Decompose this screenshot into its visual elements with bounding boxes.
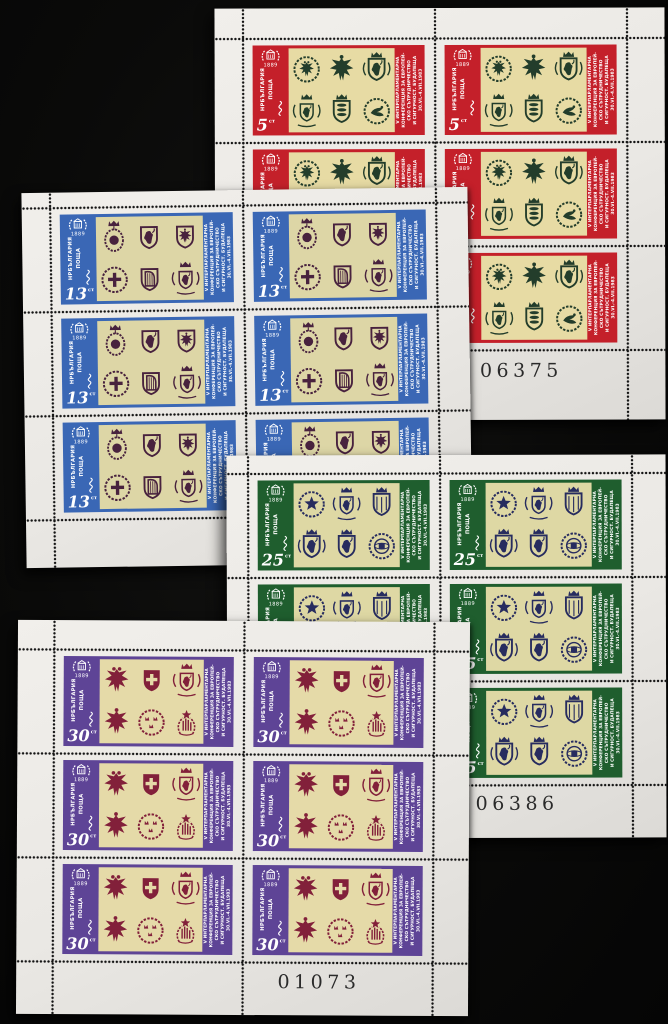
left-inscription-band: 1889НРБЪЛГАРИЯПОЩА13ст	[60, 214, 97, 304]
conference-inscription-line: 30.VI.-4.VII.1983	[610, 52, 616, 127]
conference-inscription: V ИНТЕРПАРЛАМЕНТАРНАКОНФЕРЕНЦИЯ ЗА ЕВРОП…	[205, 324, 235, 400]
coat-of-arms-dove-wreath-roundel	[554, 93, 584, 129]
left-inscription-band: 1889НРБЪЛГАРИЯПОЩА25ст	[450, 480, 486, 570]
sheet-serial-number: 01073	[277, 971, 360, 993]
conference-inscription: V ИНТЕРПАРЛАМЕНТАРНАКОНФЕРЕНЦИЯ ЗА ЕВРОП…	[398, 321, 428, 397]
stamp-design: 1889НРБЪЛГАРИЯПОЩА25стV ИНТЕРПАРЛАМЕНТАР…	[450, 688, 622, 778]
coat-of-arms-double-eagle-wreath-roundel	[483, 51, 513, 87]
coat-of-arms-dove-wreath-roundel	[555, 301, 585, 337]
country-name: НРБЪЛГАРИЯ	[264, 503, 272, 546]
coat-of-arms-crowned-oval-medallion	[293, 321, 323, 357]
coat-of-arms-crowned-lion-shield	[332, 528, 362, 564]
coat-of-arms-heraldic-eagle	[519, 259, 549, 295]
country-inscription: НРБЪЛГАРИЯПОЩА	[69, 783, 85, 826]
coat-of-arms-lion-arms-with-supporters	[489, 632, 519, 668]
country-inscription: НРБЪЛГАРИЯПОЩА	[260, 338, 277, 382]
stamp-blue-13: 1889НРБЪЛГАРИЯПОЩА13стV ИНТЕРПАРЛАМЕНТАР…	[50, 205, 244, 312]
coats-of-arms-panel	[486, 691, 592, 775]
coat-of-arms-crowned-arms-with-supporters	[524, 694, 554, 730]
conference-inscription: V ИНТЕРПАРЛАМЕНТАРНАКОНФЕРЕНЦИЯ ЗА ЕВРОП…	[400, 487, 429, 562]
coat-of-arms-double-eagle-wreath-roundel	[484, 155, 514, 191]
left-inscription-band: 1889НРБЪЛГАРИЯПОЩА30ст	[253, 761, 289, 851]
coat-of-arms-three-crowns-roundel	[136, 808, 166, 844]
postal-label: ПОЩА	[76, 887, 84, 930]
ipu-1889-emblem: 1889	[253, 152, 289, 172]
coat-of-arms-royal-arms-with-supporters	[484, 301, 514, 337]
coat-of-arms-flame-wreath-star-emblem	[360, 914, 390, 950]
coats-of-arms-panel	[289, 48, 395, 132]
conference-inscription-line: 30.VI.-4.VII.1983	[226, 220, 233, 295]
denomination: 30ст	[67, 828, 97, 848]
laurel-wreath-1889-icon	[70, 867, 92, 880]
stamp-design: 1889НРБЪЛГАРИЯПОЩА30стV ИНТЕРПАРЛАМЕНТАР…	[252, 865, 422, 956]
coats-of-arms-panel	[486, 483, 592, 567]
coat-of-arms-dove-wreath-roundel	[362, 93, 392, 129]
currency-label: ст	[90, 833, 96, 839]
stamp-design: 1889НРБЪЛГАРИЯПОЩА13стV ИНТЕРПАРЛАМЕНТАР…	[60, 212, 234, 304]
conference-inscription: V ИНТЕРПАРЛАМЕНТАРНАКОНФЕРЕНЦИЯ ЗА ЕВРОП…	[587, 52, 616, 127]
coat-of-arms-cross-shield	[326, 871, 356, 907]
coat-of-arms-crowned-quartered-shield	[559, 486, 589, 522]
conference-inscription: V ИНТЕРПАРЛАМЕНТАРНАКОНФЕРЕНЦИЯ ЗА ЕВРОП…	[393, 873, 422, 948]
conference-inscription-line: 30.VI.-4.VII.1983	[611, 260, 617, 335]
coat-of-arms-double-eagle-wreath-roundel	[292, 155, 322, 191]
country-name: НРБЪЛГАРИЯ	[258, 888, 266, 931]
stamp-design: 1889НРБЪЛГАРИЯПОЩА25стV ИНТЕРПАРЛАМЕНТАР…	[450, 584, 622, 674]
country-name: НРБЪЛГАРИЯ	[69, 783, 77, 826]
coat-of-arms-eagle-shield	[171, 323, 201, 359]
stamp-blue-13: 1889НРБЪЛГАРИЯПОЩА13стV ИНТЕРПАРЛАМЕНТАР…	[53, 413, 247, 520]
ipu-1889-emblem: 1889	[64, 659, 100, 679]
flourish-ornament-icon	[468, 204, 477, 220]
stamp-design: 1889НРБЪЛГАРИЯПОЩА25стV ИНТЕРПАРЛАМЕНТАР…	[450, 480, 622, 570]
left-inscription-band: 1889НРБЪЛГАРИЯПОЩА30ст	[62, 864, 98, 954]
conference-inscription-line: 30.VI.-4.VII.1983	[418, 52, 424, 127]
coat-of-arms-harp-shield	[136, 365, 166, 401]
denomination: 30ст	[67, 724, 97, 744]
right-inscription-band: V ИНТЕРПАРЛАМЕНТАРНАКОНФЕРЕНЦИЯ ЗА ЕВРОП…	[395, 45, 425, 135]
coat-of-arms-double-headed-eagle	[101, 870, 131, 906]
coat-of-arms-three-lions-crowned-shield	[327, 93, 357, 129]
conference-inscription: V ИНТЕРПАРЛАМЕНТАРНАКОНФЕРЕНЦИЯ ЗА ЕВРОП…	[394, 769, 423, 844]
right-inscription-band: V ИНТЕРПАРЛАМЕНТАРНАКОНФЕРЕНЦИЯ ЗА ЕВРОП…	[587, 253, 617, 343]
coat-of-arms-three-lions-crowned-shield	[519, 93, 549, 129]
perforation-column	[429, 622, 436, 1016]
coat-of-arms-crowned-arms-with-supporters	[332, 486, 362, 522]
conference-inscription: V ИНТЕРПАРЛАМЕНТАРНАКОНФЕРЕНЦИЯ ЗА ЕВРОП…	[397, 217, 427, 293]
coats-of-arms-panel	[96, 216, 204, 301]
coat-of-arms-lion-arms-with-supporters	[489, 736, 519, 772]
conference-inscription-line: 30.VI.-4.VII.1983	[227, 664, 233, 739]
coat-of-arms-three-crowns-roundel	[326, 705, 356, 741]
stamp-blue-13: 1889НРБЪЛГАРИЯПОЩА13стV ИНТЕРПАРЛАМЕНТАР…	[51, 309, 245, 416]
coat-of-arms-crowned-oval-medallion	[102, 428, 132, 464]
coat-of-arms-lion-rampant-shield	[134, 219, 164, 255]
coat-of-arms-crowned-lion-shield	[524, 528, 554, 564]
coats-of-arms-panel	[481, 48, 587, 132]
stamp-purple-30: 1889НРБЪЛГАРИЯПОЩА30стV ИНТЕРПАРЛАМЕНТАР…	[243, 754, 434, 859]
denomination: 13ст	[259, 383, 289, 403]
coat-of-arms-lion-rampant-shield	[329, 320, 359, 356]
left-inscription-band: 1889НРБЪЛГАРИЯПОЩА30ст	[63, 760, 99, 850]
coat-of-arms-crowned-lion-shield-with-supporters	[554, 51, 584, 87]
conference-inscription: V ИНТЕРПАРЛАМЕНТАРНАКОНФЕРЕНЦИЯ ЗА ЕВРОП…	[204, 220, 234, 296]
coats-of-arms-panel	[289, 660, 393, 745]
coat-of-arms-royal-arms-with-supporters	[171, 767, 201, 803]
currency-label: ст	[285, 553, 291, 559]
coat-of-arms-lion-rampant-shield	[136, 323, 166, 359]
ipu-1889-emblem: 1889	[256, 422, 292, 443]
coats-of-arms-panel	[99, 763, 203, 848]
left-inscription-band: 1889НРБЪЛГАРИЯПОЩА30ст	[252, 865, 288, 955]
coat-of-arms-spread-eagle	[101, 808, 131, 844]
stamp-blue-13: 1889НРБЪЛГАРИЯПОЩА13стV ИНТЕРПАРЛАМЕНТАР…	[244, 306, 438, 413]
coat-of-arms-cross-wreath-roundel	[99, 262, 129, 298]
left-inscription-band: 1889НРБЪЛГАРИЯПОЩА30ст	[253, 657, 289, 747]
coat-of-arms-royal-arms-with-supporters	[484, 197, 514, 233]
coat-of-arms-three-crowns-roundel	[135, 912, 165, 948]
ipu-1889-emblem: 1889	[253, 868, 289, 888]
coat-of-arms-crowned-lion-shield-with-supporters	[362, 51, 392, 87]
coat-of-arms-spread-eagle	[291, 913, 321, 949]
ipu-1889-emblem: 1889	[450, 587, 486, 607]
conference-inscription: V ИНТЕРПАРЛАМЕНТАРНАКОНФЕРЕНЦИЯ ЗА ЕВРОП…	[588, 156, 617, 231]
right-inscription-band: V ИНТЕРПАРЛАМЕНТАРНАКОНФЕРЕНЦИЯ ЗА ЕВРОП…	[592, 584, 622, 674]
laurel-wreath-1889-icon	[68, 321, 90, 334]
coat-of-arms-three-crowns-roundel	[326, 809, 356, 845]
coat-of-arms-royal-arms-with-supporters	[170, 871, 200, 907]
stamp-design: 1889НРБЪЛГАРИЯПОЩА30стV ИНТЕРПАРЛАМЕНТАР…	[253, 761, 423, 852]
coats-of-arms-panel	[481, 152, 587, 236]
coat-of-arms-eagle-shield	[364, 320, 394, 356]
coats-of-arms-panel	[294, 483, 400, 567]
ipu-1889-emblem: 1889	[254, 318, 290, 339]
postal-label: ПОЩА	[267, 784, 275, 827]
stamp-blue-13: 1889НРБЪЛГАРИЯПОЩА13стV ИНТЕРПАРЛАМЕНТАР…	[243, 202, 437, 309]
laurel-wreath-1889-icon	[452, 48, 474, 61]
stamp-purple-30: 1889НРБЪЛГАРИЯПОЩА30стV ИНТЕРПАРЛАМЕНТАР…	[52, 857, 243, 962]
left-inscription-band: 1889НРБЪЛГАРИЯПОЩА13ст	[63, 422, 100, 512]
conference-inscription-line: 30.VI.-4.VII.1983	[417, 665, 423, 740]
coat-of-arms-star-wreath-roundel	[296, 486, 326, 522]
coat-of-arms-three-crowns-roundel	[136, 704, 166, 740]
conference-inscription-line: 30.VI.-4.VII.1983	[421, 321, 428, 396]
postal-label: ПОЩА	[77, 445, 86, 488]
stamp-design: 1889НРБЪЛГАРИЯПОЩА13стV ИНТЕРПАРЛАМЕНТАР…	[253, 209, 427, 301]
denomination: 25ст	[262, 548, 291, 568]
coat-of-arms-cross-shield	[326, 767, 356, 803]
currency-label: ст	[269, 118, 275, 124]
conference-inscription-line: 30.VI.-4.VII.1983	[423, 487, 429, 562]
ipu-1889-emblem: 1889	[60, 217, 96, 238]
coat-of-arms-crowned-quartered-shield	[367, 486, 397, 522]
coat-of-arms-spread-eagle	[292, 705, 322, 741]
sheet-serial-number: 06375	[480, 360, 563, 382]
perforation-column	[624, 8, 630, 420]
stamp-design: 1889НРБЪЛГАРИЯПОЩА30стV ИНТЕРПАРЛАМЕНТАР…	[63, 656, 233, 747]
laurel-wreath-1889-icon	[452, 152, 474, 165]
right-inscription-band: V ИНТЕРПАРЛАМЕНТАРНАКОНФЕРЕНЦИЯ ЗА ЕВРОП…	[204, 316, 235, 406]
stamp-purple-30: 1889НРБЪЛГАРИЯПОЩА30стV ИНТЕРПАРЛАМЕНТАР…	[53, 753, 244, 858]
coat-of-arms-royal-arms-with-supporters	[291, 93, 321, 129]
postal-label: ПОЩА	[459, 67, 467, 110]
coat-of-arms-harp-shield	[135, 261, 165, 297]
currency-label: ст	[478, 761, 484, 767]
country-name: НРБЪЛГАРИЯ	[259, 680, 267, 723]
flourish-ornament-icon	[468, 100, 477, 116]
ipu-1889-emblem: 1889	[445, 152, 481, 172]
coat-of-arms-royal-arms-with-supporters	[361, 664, 391, 700]
coat-of-arms-crowned-quartered-shield	[559, 694, 589, 730]
country-inscription: НРБЪЛГАРИЯПОЩА	[264, 503, 280, 546]
denomination: 5ст	[257, 113, 275, 133]
coat-of-arms-harp-shield	[138, 469, 168, 505]
laurel-wreath-1889-icon	[265, 587, 287, 600]
conference-inscription: V ИНТЕРПАРЛАМЕНТАРНАКОНФЕРЕНЦИЯ ЗА ЕВРОП…	[593, 591, 622, 666]
coat-of-arms-crowned-oval-medallion	[99, 220, 129, 256]
coat-of-arms-flame-wreath-star-emblem	[361, 706, 391, 742]
coat-of-arms-double-eagle-wreath-roundel	[484, 259, 514, 295]
coat-of-arms-crowned-lion-shield-with-supporters	[554, 155, 584, 191]
laurel-wreath-1889-icon	[260, 868, 282, 881]
conference-inscription-line: 30.VI.-4.VII.1983	[226, 768, 232, 843]
conference-inscription-line: 30.VI.-4.VII.1983	[610, 156, 616, 231]
sheet-serial-number: 06386	[476, 793, 559, 815]
flourish-ornament-icon	[468, 308, 477, 324]
laurel-wreath-1889-icon	[260, 48, 282, 61]
left-inscription-band: 1889НРБЪЛГАРИЯПОЩА25ст	[258, 480, 294, 570]
country-inscription: НРБЪЛГАРИЯПОЩА	[258, 888, 274, 931]
conference-inscription: V ИНТЕРПАРЛАМЕНТАРНАКОНФЕРЕНЦИЯ ЗА ЕВРОП…	[394, 665, 423, 740]
stamp-red-5: 1889НРБЪЛГАРИЯПОЩА5стV ИНТЕРПАРЛАМЕНТАРН…	[243, 38, 435, 143]
conference-inscription-line: 30.VI.-4.VII.1983	[615, 487, 621, 562]
country-inscription: НРБЪЛГАРИЯПОЩА	[66, 237, 83, 281]
stamp-design: 1889НРБЪЛГАРИЯПОЩА5стV ИНТЕРПАРЛАМЕНТАРН…	[445, 149, 617, 239]
coat-of-arms-flame-wreath-star-emblem	[170, 913, 200, 949]
stamp-design: 1889НРБЪЛГАРИЯПОЩА5стV ИНТЕРПАРЛАМЕНТАРН…	[445, 253, 617, 343]
conference-inscription-line: 30.VI.-4.VII.1983	[416, 769, 422, 844]
right-inscription-band: V ИНТЕРПАРЛАМЕНТАРНАКОНФЕРЕНЦИЯ ЗА ЕВРОП…	[592, 480, 622, 570]
coat-of-arms-cross-wreath-roundel	[292, 259, 322, 295]
currency-label: ст	[282, 388, 288, 394]
country-inscription: НРБЪЛГАРИЯПОЩА	[67, 341, 84, 385]
currency-label: ст	[88, 287, 94, 293]
denomination: 25ст	[454, 548, 483, 568]
conference-inscription-line: 30.VI.-4.VII.1983	[615, 591, 621, 666]
coats-of-arms-panel	[97, 320, 205, 405]
laurel-wreath-1889-icon	[457, 483, 479, 496]
coats-of-arms-panel	[289, 213, 397, 298]
ipu-1889-emblem: 1889	[253, 214, 289, 235]
stamp-purple-30: 1889НРБЪЛГАРИЯПОЩА30стV ИНТЕРПАРЛАМЕНТАР…	[242, 858, 433, 963]
coats-of-arms-panel	[99, 659, 203, 744]
flourish-ornament-icon	[276, 100, 285, 116]
currency-label: ст	[461, 118, 467, 124]
currency-label: ст	[91, 729, 97, 735]
ipu-1889-emblem: 1889	[445, 48, 481, 68]
country-name: НРБЪЛГАРИЯ	[68, 887, 76, 930]
ipu-1889-emblem: 1889	[258, 587, 294, 607]
postal-label: ПОЩА	[267, 68, 275, 111]
coat-of-arms-spread-eagle	[291, 809, 321, 845]
coat-of-arms-lion-arms-with-supporters	[296, 528, 326, 564]
coat-of-arms-star-wreath-roundel	[488, 486, 518, 522]
coat-of-arms-flame-wreath-star-emblem	[171, 809, 201, 845]
coat-of-arms-armillary-sphere-roundel	[559, 528, 589, 564]
country-inscription: НРБЪЛГАРИЯПОЩА	[456, 502, 472, 545]
conference-inscription-line: 30.VI.-4.VII.1983	[419, 217, 426, 292]
coat-of-arms-three-crowns-roundel	[325, 913, 355, 949]
ipu-1889-emblem: 1889	[450, 483, 486, 503]
right-inscription-band: V ИНТЕРПАРЛАМЕНТАРНАКОНФЕРЕНЦИЯ ЗА ЕВРОП…	[397, 313, 428, 403]
currency-label: ст	[89, 391, 95, 397]
laurel-wreath-1889-icon	[71, 659, 93, 672]
coat-of-arms-star-wreath-roundel	[489, 590, 519, 626]
postal-label: ПОЩА	[78, 679, 86, 722]
stamp-sheets-photo: 1889НРБЪЛГАРИЯПОЩА5стV ИНТЕРПАРЛАМЕНТАРН…	[0, 0, 668, 1024]
conference-inscription: V ИНТЕРПАРЛАМЕНТАРНАКОНФЕРЕНЦИЯ ЗА ЕВРОП…	[588, 260, 617, 335]
coat-of-arms-crowned-arms-with-supporters	[365, 362, 395, 398]
postal-label: ПОЩА	[464, 502, 472, 545]
country-name: НРБЪЛГАРИЯ	[70, 679, 78, 722]
coats-of-arms-panel	[98, 867, 202, 952]
right-inscription-band: V ИНТЕРПАРЛАМЕНТАРНАКОНФЕРЕНЦИЯ ЗА ЕВРОП…	[202, 865, 232, 955]
currency-label: ст	[90, 937, 96, 943]
coat-of-arms-heraldic-eagle	[519, 155, 549, 191]
coat-of-arms-heraldic-eagle	[327, 155, 357, 191]
postal-label: ПОЩА	[268, 338, 277, 381]
stamp-design: 1889НРБЪЛГАРИЯПОЩА5стV ИНТЕРПАРЛАМЕНТАРН…	[253, 45, 425, 135]
coat-of-arms-lion-rampant-shield	[137, 427, 167, 463]
coat-of-arms-eagle-shield	[363, 216, 393, 252]
ipu-1889-emblem: 1889	[63, 425, 99, 446]
country-inscription: НРБЪЛГАРИЯПОЩА	[70, 679, 86, 722]
country-inscription: НРБЪЛГАРИЯПОЩА	[259, 234, 276, 278]
coat-of-arms-three-lions-crowned-shield	[519, 301, 549, 337]
coat-of-arms-crowned-oval-medallion	[100, 324, 130, 360]
coat-of-arms-double-eagle-wreath-roundel	[291, 51, 321, 87]
right-inscription-band: V ИНТЕРПАРЛАМЕНТАРНАКОНФЕРЕНЦИЯ ЗА ЕВРОП…	[396, 209, 427, 299]
coats-of-arms-panel	[486, 587, 592, 671]
right-inscription-band: V ИНТЕРПАРЛАМЕНТАРНАКОНФЕРЕНЦИЯ ЗА ЕВРОП…	[592, 688, 622, 778]
stamp-design: 1889НРБЪЛГАРИЯПОЩА13стV ИНТЕРПАРЛАМЕНТАР…	[61, 316, 235, 408]
laurel-wreath-1889-icon	[261, 318, 283, 331]
coat-of-arms-heraldic-eagle	[519, 51, 549, 87]
laurel-wreath-1889-icon	[260, 152, 282, 165]
coat-of-arms-crowned-arms-with-supporters	[364, 258, 394, 294]
postal-label: ПОЩА	[266, 888, 274, 931]
ipu-1889-emblem: 1889	[63, 867, 99, 887]
stamp-design: 1889НРБЪЛГАРИЯПОЩА5стV ИНТЕРПАРЛАМЕНТАРН…	[445, 45, 617, 135]
coat-of-arms-spread-eagle	[102, 704, 132, 740]
laurel-wreath-1889-icon	[260, 214, 282, 227]
coat-of-arms-cross-wreath-roundel	[102, 470, 132, 506]
currency-label: ст	[477, 553, 483, 559]
country-inscription: НРБЪЛГАРИЯПОЩА	[68, 887, 84, 930]
postal-label: ПОЩА	[267, 680, 275, 723]
coat-of-arms-double-headed-eagle	[102, 662, 132, 698]
right-inscription-band: V ИНТЕРПАРЛАМЕНТАРНАКОНФЕРЕНЦИЯ ЗА ЕВРОП…	[203, 761, 233, 851]
coat-of-arms-harp-shield	[328, 258, 358, 294]
laurel-wreath-1889-icon	[261, 660, 283, 673]
left-inscription-band: 1889НРБЪЛГАРИЯПОЩА13ст	[253, 211, 290, 301]
stamp-green-25: 1889НРБЪЛГАРИЯПОЩА25стV ИНТЕРПАРЛАМЕНТАР…	[440, 473, 632, 578]
coat-of-arms-crowned-arms-with-supporters	[524, 590, 554, 626]
right-inscription-band: V ИНТЕРПАРЛАМЕНТАРНАКОНФЕРЕНЦИЯ ЗА ЕВРОП…	[203, 657, 233, 747]
perforation-column	[629, 455, 635, 838]
stamp-purple-30: 1889НРБЪЛГАРИЯПОЩА30стV ИНТЕРПАРЛАМЕНТАР…	[243, 650, 434, 755]
laurel-wreath-1889-icon	[260, 764, 282, 777]
stamp-design: 1889НРБЪЛГАРИЯПОЩА25стV ИНТЕРПАРЛАМЕНТАР…	[258, 480, 430, 570]
coat-of-arms-crowned-arms-with-supporters	[173, 469, 203, 505]
coat-of-arms-eagle-shield	[170, 219, 200, 255]
conference-inscription: V ИНТЕРПАРЛАМЕНТАРНАКОНФЕРЕНЦИЯ ЗА ЕВРОП…	[203, 872, 232, 947]
coat-of-arms-royal-arms-with-supporters	[361, 768, 391, 804]
coat-of-arms-cross-wreath-roundel	[294, 363, 324, 399]
coats-of-arms-panel	[289, 764, 393, 849]
coat-of-arms-cross-wreath-roundel	[101, 366, 131, 402]
coat-of-arms-harp-shield	[329, 362, 359, 398]
right-inscription-band: V ИНТЕРПАРЛАМЕНТАРНАКОНФЕРЕНЦИЯ ЗА ЕВРОП…	[587, 149, 617, 239]
right-inscription-band: V ИНТЕРПАРЛАМЕНТАРНАКОНФЕРЕНЦИЯ ЗА ЕВРОП…	[393, 658, 423, 748]
currency-label: ст	[280, 938, 286, 944]
left-inscription-band: 1889НРБЪЛГАРИЯПОЩА5ст	[445, 45, 481, 135]
conference-inscription: V ИНТЕРПАРЛАМЕНТАРНАКОНФЕРЕНЦИЯ ЗА ЕВРОП…	[395, 52, 424, 127]
country-inscription: НРБЪЛГАРИЯПОЩА	[69, 445, 86, 489]
ipu-1889-emblem: 1889	[253, 48, 289, 68]
postal-label: ПОЩА	[74, 237, 83, 280]
currency-label: ст	[281, 284, 287, 290]
coat-of-arms-royal-arms-with-supporters	[360, 872, 390, 908]
postal-label: ПОЩА	[267, 234, 276, 277]
country-inscription: НРБЪЛГАРИЯПОЩА	[259, 680, 275, 723]
coat-of-arms-three-lions-crowned-shield	[519, 197, 549, 233]
right-inscription-band: V ИНТЕРПАРЛАМЕНТАРНАКОНФЕРЕНЦИЯ ЗА ЕВРОП…	[393, 762, 423, 852]
coat-of-arms-royal-arms-with-supporters	[171, 663, 201, 699]
country-inscription: НРБЪЛГАРИЯПОЩА	[451, 67, 467, 110]
coat-of-arms-eagle-shield	[173, 427, 203, 463]
coat-of-arms-cross-shield	[136, 766, 166, 802]
conference-inscription: V ИНТЕРПАРЛАМЕНТАРНАКОНФЕРЕНЦИЯ ЗА ЕВРОП…	[204, 768, 233, 843]
coat-of-arms-lion-arms-with-supporters	[488, 528, 518, 564]
coat-of-arms-armillary-sphere-roundel	[560, 736, 590, 772]
coat-of-arms-double-headed-eagle	[291, 767, 321, 803]
stamp-red-5: 1889НРБЪЛГАРИЯПОЩА5стV ИНТЕРПАРЛАМЕНТАРН…	[435, 38, 627, 143]
coat-of-arms-crowned-lion-shield-with-supporters	[362, 155, 392, 191]
left-inscription-band: 1889НРБЪЛГАРИЯПОЩА13ст	[61, 318, 98, 408]
denomination: 13ст	[258, 279, 288, 299]
conference-inscription: V ИНТЕРПАРЛАМЕНТАРНАКОНФЕРЕНЦИЯ ЗА ЕВРОП…	[204, 664, 233, 739]
laurel-wreath-1889-icon	[67, 217, 89, 230]
currency-label: ст	[91, 495, 97, 501]
conference-inscription: V ИНТЕРПАРЛАМЕНТАРНАКОНФЕРЕНЦИЯ ЗА ЕВРОП…	[592, 487, 621, 562]
coat-of-arms-star-wreath-roundel	[489, 694, 519, 730]
country-name: НРБЪЛГАРИЯ	[259, 784, 267, 827]
stamp-sheet-purple-30: 1889НРБЪЛГАРИЯПОЩА30стV ИНТЕРПАРЛАМЕНТАР…	[16, 620, 470, 1016]
coat-of-arms-crowned-quartered-shield	[559, 590, 589, 626]
ipu-1889-emblem: 1889	[63, 763, 99, 783]
coats-of-arms-panel	[288, 868, 392, 953]
denomination: 13ст	[65, 282, 95, 302]
ipu-1889-emblem: 1889	[254, 660, 290, 680]
denomination: 30ст	[257, 725, 287, 745]
conference-inscription-line: 30.VI.-4.VII.1983	[228, 324, 235, 399]
coat-of-arms-spread-eagle	[101, 912, 131, 948]
ipu-1889-emblem: 1889	[253, 764, 289, 784]
conference-inscription-line: 30.VI.-4.VII.1983	[226, 872, 232, 947]
stamp-design: 1889НРБЪЛГАРИЯПОЩА30стV ИНТЕРПАРЛАМЕНТАР…	[62, 864, 232, 955]
country-name: НРБЪЛГАРИЯ	[456, 502, 464, 545]
